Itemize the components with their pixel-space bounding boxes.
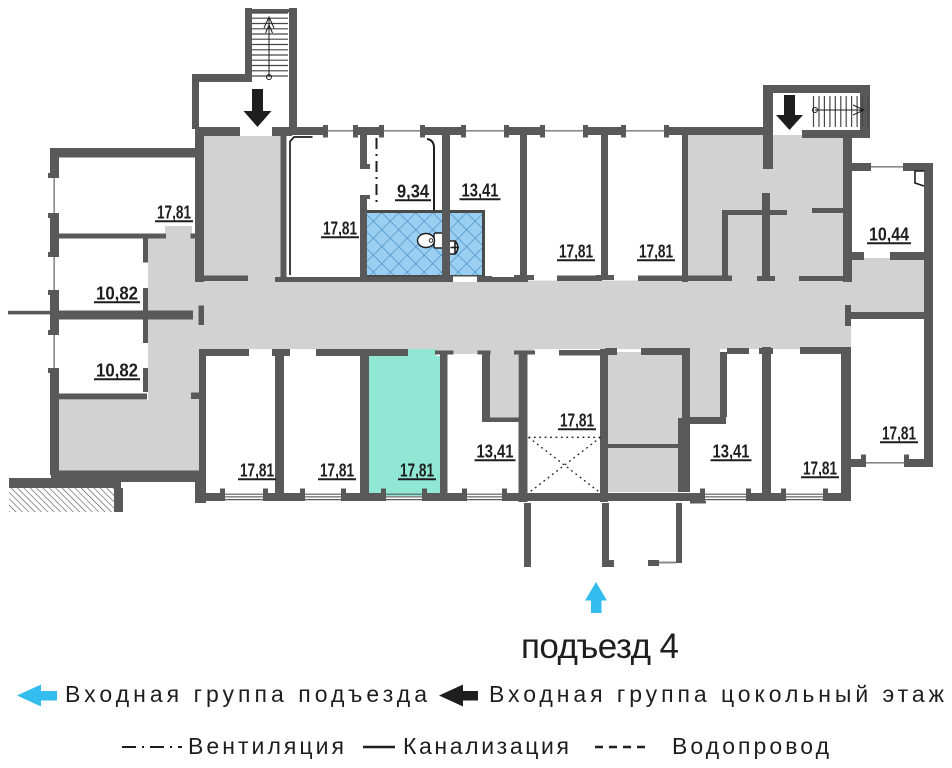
svg-text:10,82: 10,82 (96, 360, 138, 381)
svg-text:подъезд 4: подъезд 4 (521, 627, 679, 666)
svg-text:Входная группа цокольный этаж: Входная группа цокольный этаж (489, 681, 945, 707)
svg-text:Канализация: Канализация (403, 733, 570, 759)
svg-text:17,81: 17,81 (559, 241, 593, 262)
svg-text:17,81: 17,81 (560, 410, 594, 431)
svg-text:13,41: 13,41 (713, 441, 750, 462)
svg-text:10,82: 10,82 (96, 283, 138, 304)
svg-text:Вентиляция: Вентиляция (188, 733, 345, 759)
svg-text:17,81: 17,81 (320, 460, 354, 481)
svg-text:Входная группа подъезда: Входная группа подъезда (65, 681, 428, 707)
svg-text:17,81: 17,81 (157, 202, 191, 223)
svg-text:17,81: 17,81 (882, 423, 916, 444)
svg-text:10,44: 10,44 (869, 224, 910, 245)
svg-text:Водопровод: Водопровод (672, 733, 830, 759)
svg-text:17,81: 17,81 (323, 218, 357, 239)
svg-text:13,41: 13,41 (477, 441, 514, 462)
svg-text:17,81: 17,81 (400, 460, 434, 481)
svg-text:17,81: 17,81 (240, 460, 274, 481)
svg-text:13,41: 13,41 (462, 180, 499, 201)
svg-text:17,81: 17,81 (639, 241, 673, 262)
svg-text:9,34: 9,34 (397, 181, 430, 202)
svg-text:17,81: 17,81 (803, 458, 837, 479)
